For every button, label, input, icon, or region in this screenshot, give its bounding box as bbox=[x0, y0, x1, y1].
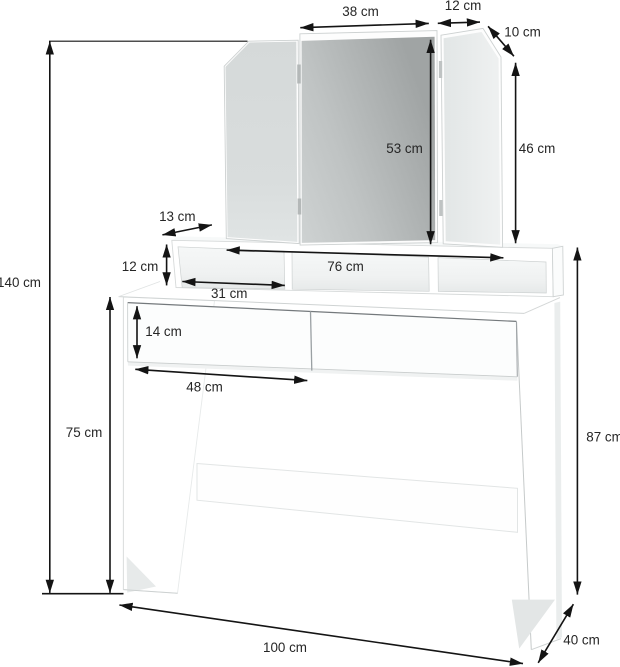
svg-text:140 cm: 140 cm bbox=[0, 275, 41, 290]
svg-text:10 cm: 10 cm bbox=[504, 24, 540, 39]
svg-text:100 cm: 100 cm bbox=[263, 640, 307, 655]
svg-text:75 cm: 75 cm bbox=[66, 425, 102, 440]
svg-text:38 cm: 38 cm bbox=[342, 4, 378, 19]
svg-text:53 cm: 53 cm bbox=[386, 141, 422, 156]
svg-text:40 cm: 40 cm bbox=[563, 632, 599, 647]
svg-text:14 cm: 14 cm bbox=[145, 324, 181, 339]
svg-text:12 cm: 12 cm bbox=[122, 259, 158, 274]
svg-text:31 cm: 31 cm bbox=[211, 286, 247, 301]
svg-text:87 cm: 87 cm bbox=[586, 430, 620, 445]
svg-text:12 cm: 12 cm bbox=[445, 0, 481, 13]
svg-text:46 cm: 46 cm bbox=[519, 141, 555, 156]
svg-text:48 cm: 48 cm bbox=[186, 380, 222, 395]
svg-text:76 cm: 76 cm bbox=[327, 259, 363, 274]
svg-text:13 cm: 13 cm bbox=[159, 209, 195, 224]
